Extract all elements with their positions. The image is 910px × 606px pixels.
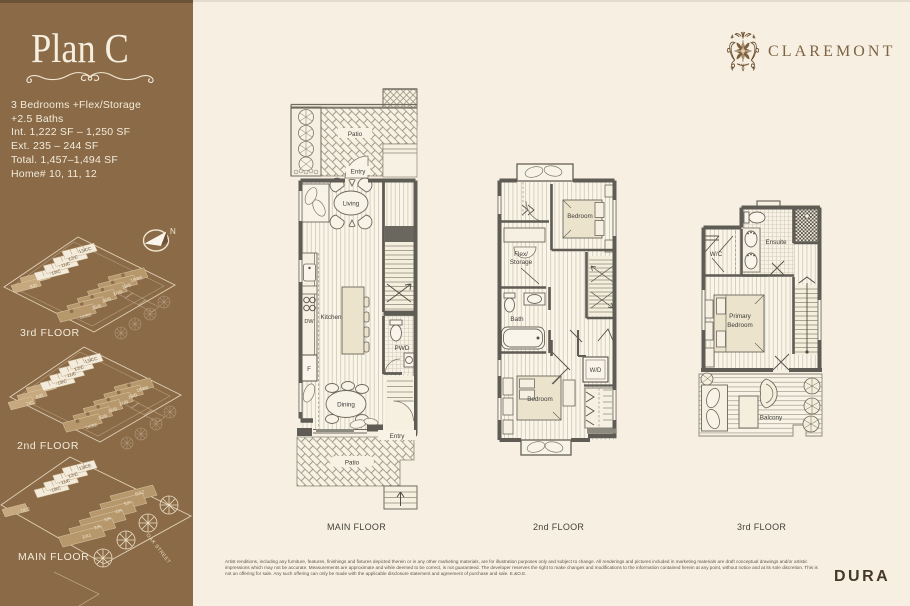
svg-text:Ensuite: Ensuite [765,239,787,246]
svg-text:Bath: Bath [510,316,524,323]
svg-text:Bedroom: Bedroom [727,322,753,329]
svg-text:Entry: Entry [351,169,367,176]
svg-text:Living: Living [343,201,360,208]
svg-text:Primary: Primary [729,313,752,320]
svg-text:Storage: Storage [510,259,533,266]
svg-text:W/C: W/C [710,251,723,258]
svg-text:Bedroom: Bedroom [527,396,553,403]
svg-text:OAK STREET: OAK STREET [144,533,171,566]
svg-text:DW: DW [304,319,314,325]
svg-text:Patio: Patio [345,460,360,467]
svg-text:Balcony: Balcony [760,415,783,422]
svg-text:CLAREMONT: CLAREMONT [768,43,895,60]
svg-text:Bedroom: Bedroom [567,213,593,220]
svg-text:Flex/: Flex/ [514,251,528,258]
svg-text:Patio: Patio [348,131,363,138]
svg-text:Entry: Entry [390,433,406,440]
svg-text:Kitchen: Kitchen [320,314,342,321]
svg-text:F: F [307,366,311,373]
svg-text:Dining: Dining [337,402,355,409]
svg-text:PWD: PWD [395,345,410,352]
svg-text:W/D: W/D [590,368,602,374]
